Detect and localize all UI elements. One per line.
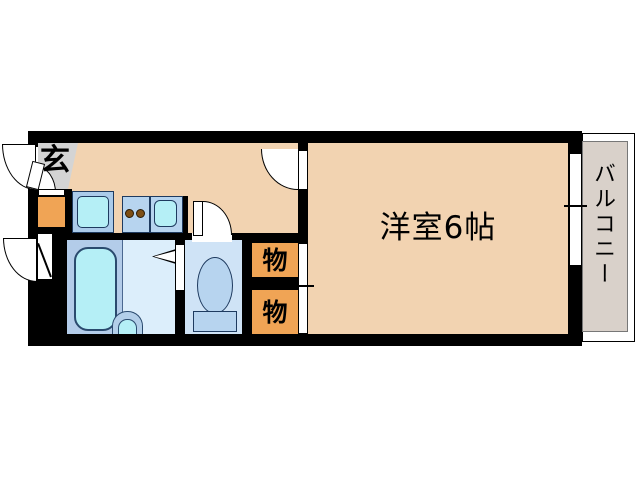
stove-burner-icon bbox=[136, 209, 145, 218]
washbasin-bowl bbox=[118, 319, 137, 334]
main-room-label: 洋室6帖 bbox=[308, 213, 568, 244]
storage-label-top: 物 bbox=[252, 243, 298, 277]
balcony-window-tick bbox=[564, 205, 587, 207]
balcony-window bbox=[569, 154, 582, 265]
bathtub bbox=[74, 247, 117, 331]
entrance-label: 玄 bbox=[40, 146, 70, 176]
closet-sliding-door bbox=[298, 243, 308, 334]
kitchen-sink-unit-basin bbox=[77, 196, 109, 228]
entrance-step bbox=[38, 189, 65, 196]
service-door-swing-icon bbox=[3, 238, 37, 282]
floor-plan: 玄 洋室6帖 物 物 バルコニー bbox=[0, 0, 640, 480]
toilet-tank bbox=[193, 311, 237, 332]
toilet-door-leaf bbox=[193, 201, 203, 236]
kitchen-counter-divider bbox=[149, 196, 151, 233]
kitchen-sink bbox=[154, 200, 177, 227]
storage-label-bottom: 物 bbox=[252, 290, 298, 334]
shoe-cabinet bbox=[38, 197, 65, 227]
toilet-bowl bbox=[197, 257, 233, 314]
stove-burner-icon bbox=[125, 209, 134, 218]
main-room-door-leaf bbox=[298, 150, 308, 190]
washroom-door-opening bbox=[176, 245, 184, 290]
closet-sliding-door-tick bbox=[295, 285, 314, 287]
balcony-label: バルコニー bbox=[591, 162, 613, 322]
wall-patch bbox=[65, 189, 72, 233]
